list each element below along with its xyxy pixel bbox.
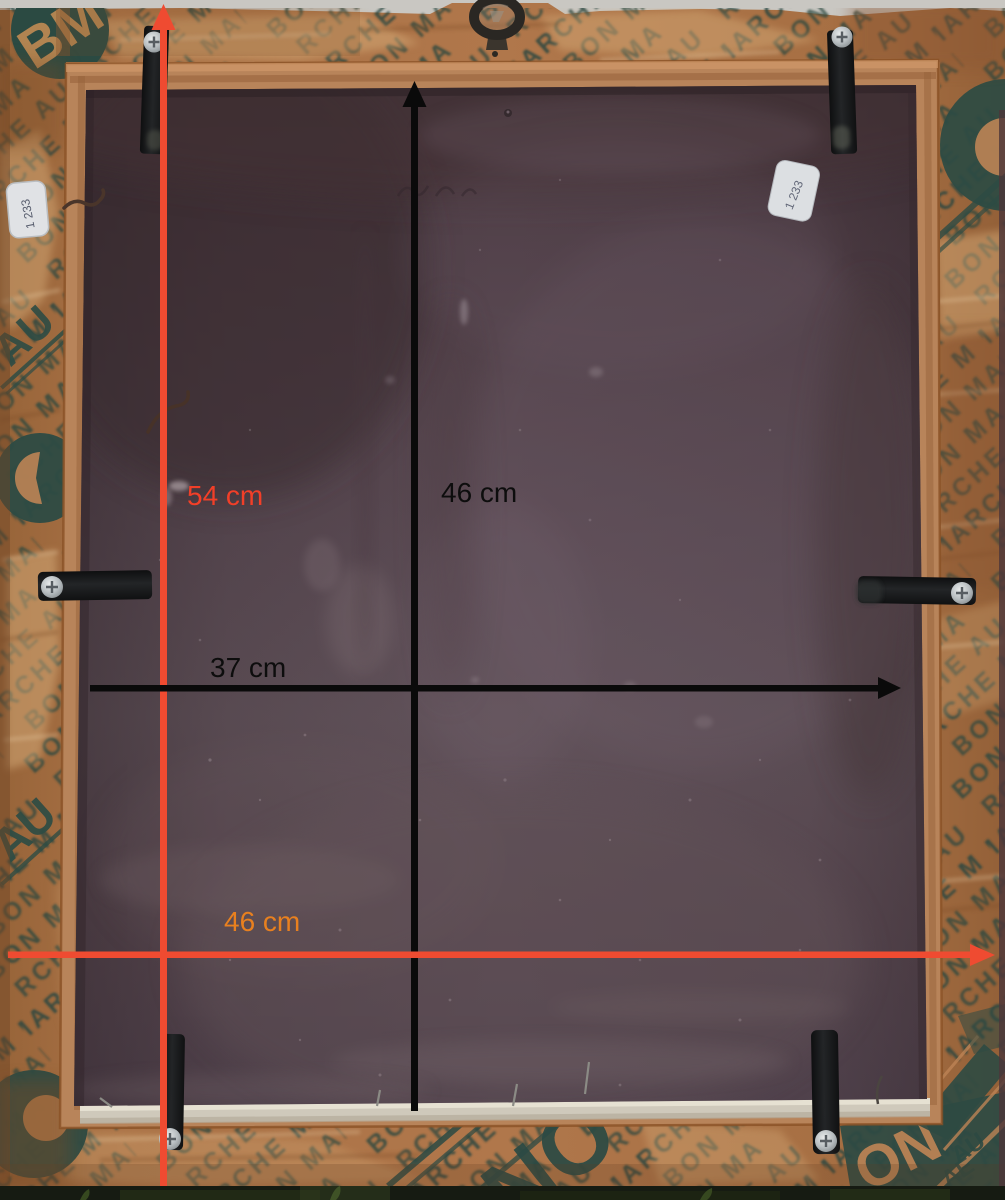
svg-text:46 cm: 46 cm	[224, 906, 300, 937]
svg-text:46 cm: 46 cm	[441, 477, 517, 508]
svg-text:37 cm: 37 cm	[210, 652, 286, 683]
svg-text:54 cm: 54 cm	[187, 480, 263, 511]
